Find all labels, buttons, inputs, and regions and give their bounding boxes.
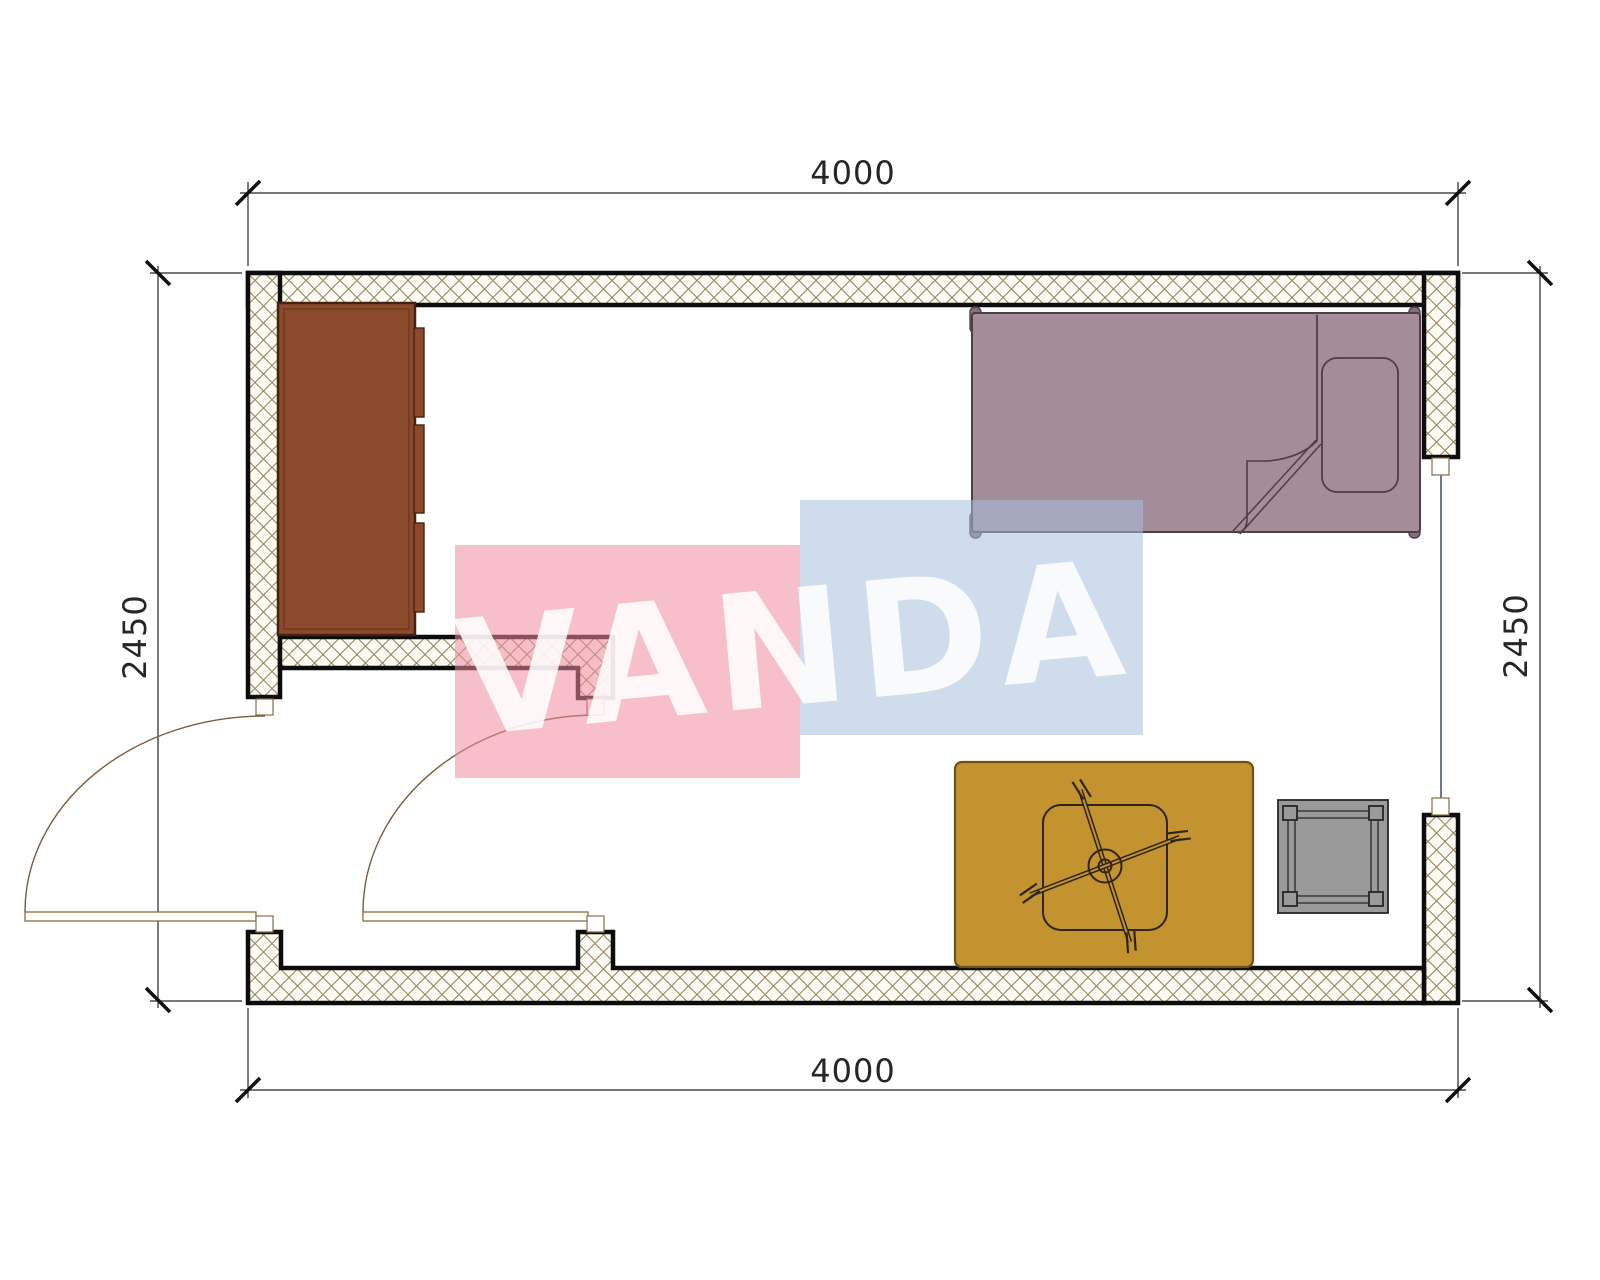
- stool-leg: [1369, 806, 1383, 820]
- dimension-label-right: 2450: [1497, 593, 1535, 678]
- entry-door-swing-arc: [25, 716, 265, 912]
- dimension-label-bottom: 4000: [810, 1052, 895, 1090]
- top-wall: [248, 273, 1458, 305]
- bed-pillow: [1322, 358, 1398, 492]
- entry-door-leaf: [25, 912, 256, 921]
- room-door-leaf: [363, 912, 588, 921]
- dimension-label-top: 4000: [810, 154, 895, 192]
- stool-leg: [1283, 892, 1297, 906]
- entry-door-jamb-top: [256, 699, 273, 715]
- wardrobe-body: [278, 303, 415, 635]
- right-wall-upper: [1424, 273, 1458, 457]
- watermark: VANDA: [449, 500, 1143, 778]
- room-door-jamb-bottom: [587, 916, 604, 932]
- dimension-label-left: 2450: [116, 594, 154, 679]
- floor-plan-page: 4000 4000 2450 2450: [0, 0, 1600, 1280]
- window: [1432, 458, 1449, 815]
- top-dimension-line: [240, 182, 1466, 266]
- entry-door-jamb-bottom: [256, 916, 273, 932]
- stool-leg: [1283, 806, 1297, 820]
- entry-door: [25, 699, 273, 932]
- wardrobe-door-panel: [414, 328, 424, 417]
- window-jamb-top: [1432, 458, 1449, 475]
- left-dimension-line: [150, 266, 242, 1008]
- window-jamb-bottom: [1432, 798, 1449, 815]
- left-wall: [248, 273, 280, 697]
- wardrobe: [278, 303, 424, 635]
- wardrobe-door-panel: [414, 523, 424, 612]
- right-wall-lower: [1424, 815, 1458, 1003]
- stool: [1278, 800, 1388, 913]
- stool-leg: [1369, 892, 1383, 906]
- floor-plan-drawing: 4000 4000 2450 2450: [0, 0, 1600, 1280]
- wardrobe-door-panel: [414, 425, 424, 513]
- rug-and-chair: [955, 762, 1253, 967]
